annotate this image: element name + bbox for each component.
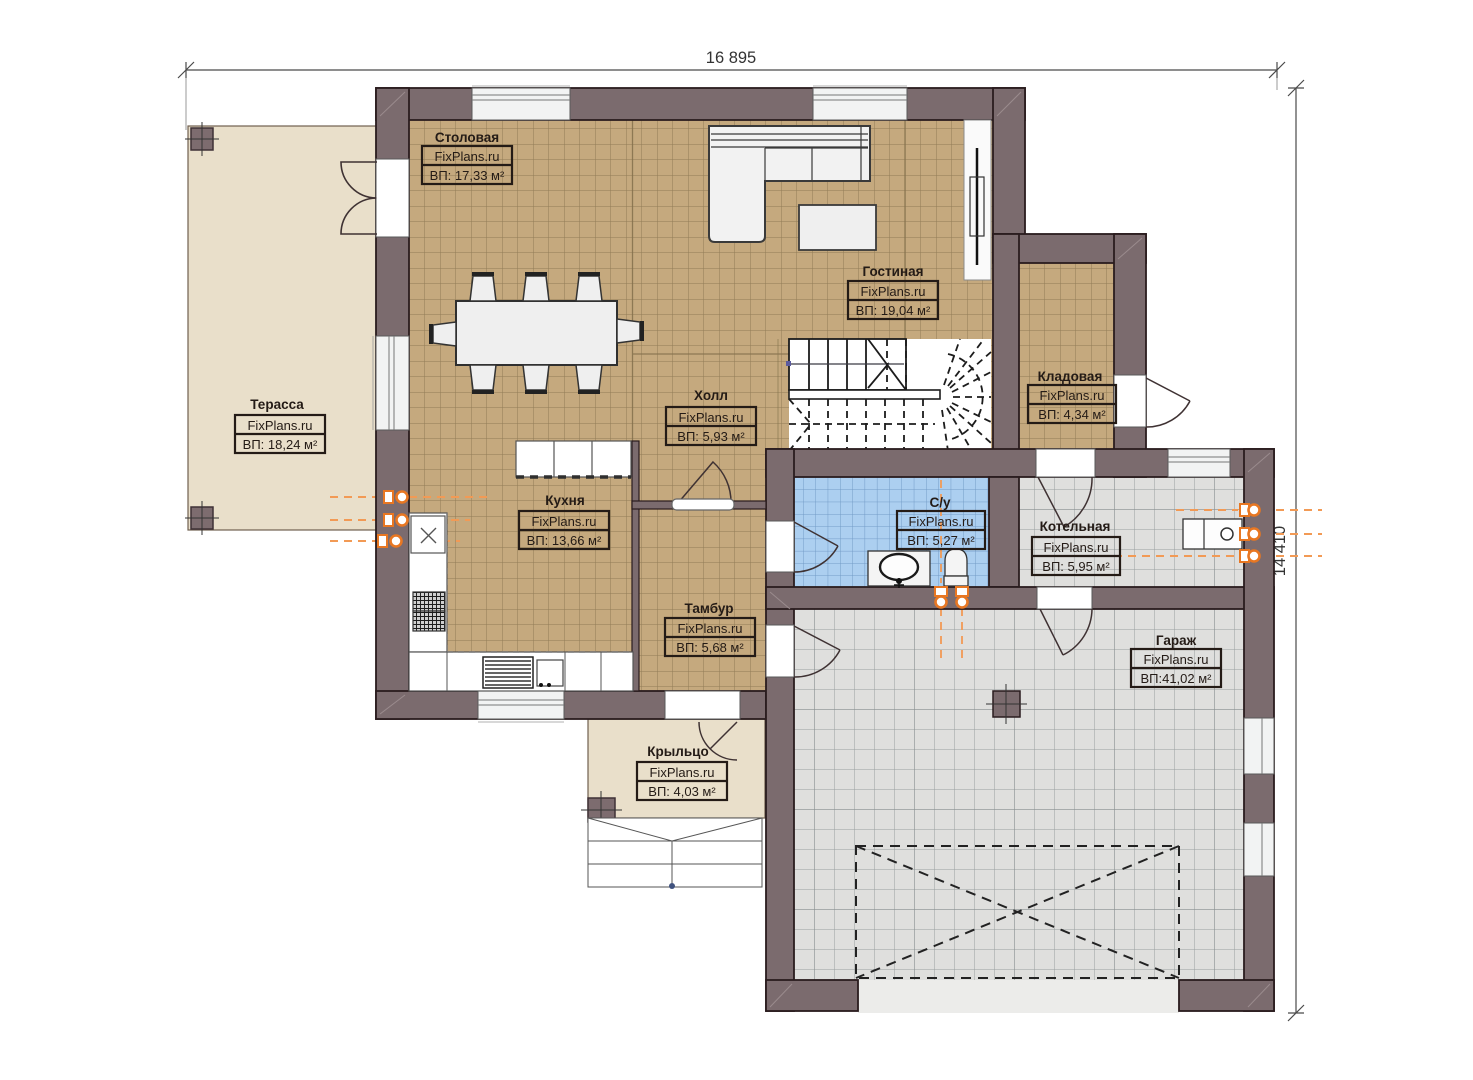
- svg-text:FixPlans.ru: FixPlans.ru: [247, 418, 312, 433]
- svg-text:FixPlans.ru: FixPlans.ru: [434, 149, 499, 164]
- svg-text:ВП: 4,34 м²: ВП: 4,34 м²: [1038, 407, 1106, 422]
- svg-text:Кладовая: Кладовая: [1038, 369, 1103, 384]
- svg-text:FixPlans.ru: FixPlans.ru: [649, 765, 714, 780]
- svg-text:Холл: Холл: [694, 388, 728, 403]
- svg-text:ВП: 5,93 м²: ВП: 5,93 м²: [677, 429, 745, 444]
- svg-text:ВП: 5,27 м²: ВП: 5,27 м²: [907, 533, 975, 548]
- svg-text:Гараж: Гараж: [1156, 633, 1197, 648]
- svg-text:ВП: 5,68 м²: ВП: 5,68 м²: [676, 640, 744, 655]
- svg-text:FixPlans.ru: FixPlans.ru: [860, 284, 925, 299]
- svg-text:ВП: 19,04 м²: ВП: 19,04 м²: [856, 303, 931, 318]
- svg-text:ВП:41,02 м²: ВП:41,02 м²: [1140, 671, 1212, 686]
- svg-text:16 895: 16 895: [706, 49, 756, 67]
- svg-text:Терасса: Терасса: [250, 397, 304, 412]
- svg-text:ВП: 13,66 м²: ВП: 13,66 м²: [527, 533, 602, 548]
- svg-text:FixPlans.ru: FixPlans.ru: [1039, 388, 1104, 403]
- svg-text:Крыльцо: Крыльцо: [647, 744, 708, 759]
- svg-text:Котельная: Котельная: [1040, 519, 1111, 534]
- svg-text:ВП: 4,03 м²: ВП: 4,03 м²: [648, 784, 716, 799]
- svg-text:Столовая: Столовая: [435, 130, 499, 145]
- svg-text:FixPlans.ru: FixPlans.ru: [908, 514, 973, 529]
- svg-text:Кухня: Кухня: [545, 493, 584, 508]
- svg-text:FixPlans.ru: FixPlans.ru: [1043, 540, 1108, 555]
- svg-text:Гостиная: Гостиная: [862, 264, 923, 279]
- svg-text:Тамбур: Тамбур: [685, 601, 734, 616]
- svg-text:FixPlans.ru: FixPlans.ru: [678, 410, 743, 425]
- svg-text:FixPlans.ru: FixPlans.ru: [677, 621, 742, 636]
- svg-text:FixPlans.ru: FixPlans.ru: [531, 514, 596, 529]
- svg-text:С/у: С/у: [929, 495, 951, 510]
- svg-text:ВП: 18,24 м²: ВП: 18,24 м²: [243, 437, 318, 452]
- svg-text:ВП: 17,33 м²: ВП: 17,33 м²: [430, 168, 505, 183]
- svg-text:ВП: 5,95 м²: ВП: 5,95 м²: [1042, 559, 1110, 574]
- svg-text:FixPlans.ru: FixPlans.ru: [1143, 652, 1208, 667]
